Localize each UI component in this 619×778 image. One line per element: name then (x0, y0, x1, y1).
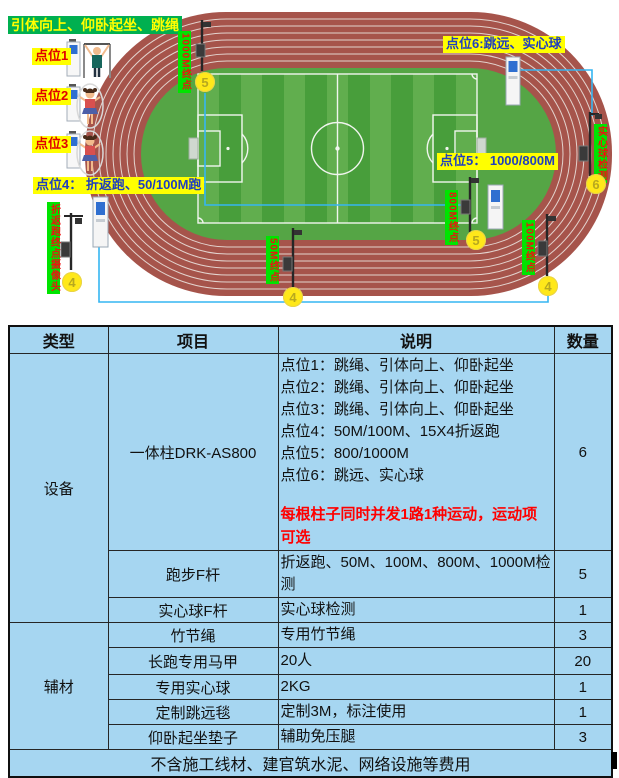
kiosk-point6-icon (506, 57, 520, 105)
kiosk-point4-icon (93, 197, 108, 247)
desc-cell: 折返跑、50M、100M、800M、1000M检测 (278, 551, 554, 598)
finish-1000m-label: 1000M终点 (178, 31, 191, 93)
table-row: 辅材 竹节绳 专用竹节绳 3 (9, 623, 612, 648)
point6-label: 点位6:跳远、实心球 (443, 36, 565, 53)
pullup-station-figure (84, 44, 110, 78)
concurrency-note: 每根柱子同时并发1路1种运动，运动项可选 (281, 503, 552, 549)
qty-cell: 1 (554, 675, 612, 700)
desc-line: 点位4：50M/100M、15X4折返跑 (281, 421, 552, 443)
item-cell: 实心球F杆 (108, 598, 278, 623)
text-cursor-artifact (611, 752, 617, 769)
qty-cell: 6 (554, 354, 612, 551)
desc-cell: 专用竹节绳 (278, 623, 554, 648)
circle-5-top: 5 (195, 72, 215, 92)
equipment-table-wrap: 类型 项目 说明 数量 设备 一体柱DRK-AS800 点位1：跳绳、引体向上、… (8, 325, 613, 778)
header-desc: 说明 (278, 326, 554, 354)
circle-6-right: 6 (586, 174, 606, 194)
track-diagram: 引体向上、仰卧起坐、跳绳 点位1 点位2 点位3 点位4： 折返跑、50/100… (0, 0, 619, 324)
exclusion-note: 不含施工线材、建官筑水泥、网络设施等费用 (9, 750, 612, 778)
header-item: 项目 (108, 326, 278, 354)
goal-left-icon (189, 138, 198, 159)
finish-800m-label: 800M终点 (445, 190, 458, 245)
circle-4-left: 4 (62, 272, 82, 292)
desc-line: 点位1：跳绳、引体向上、仰卧起坐 (281, 355, 552, 377)
circle-5-mid: 5 (466, 230, 486, 250)
shuttle-run-finish-camera-label: 折返跑终点摄像头 (47, 202, 60, 294)
qty-cell: 5 (554, 551, 612, 598)
point4-label: 点位4： 折返跑、50/100M跑 (33, 177, 204, 194)
desc-cell: 定制3M，标注使用 (278, 700, 554, 725)
table-row: 设备 一体柱DRK-AS800 点位1：跳绳、引体向上、仰卧起坐 点位2：跳绳、… (9, 354, 612, 551)
item-cell: 专用实心球 (108, 675, 278, 700)
item-cell: 仰卧起坐垫子 (108, 725, 278, 750)
item-cell: 竹节绳 (108, 623, 278, 648)
desc-cell: 20人 (278, 648, 554, 675)
qty-cell: 3 (554, 623, 612, 648)
finish-100m-label: 100M终点 (522, 220, 535, 275)
circle-4-mid: 4 (283, 287, 303, 307)
equipment-table: 类型 项目 说明 数量 设备 一体柱DRK-AS800 点位1：跳绳、引体向上、… (8, 325, 613, 778)
kiosk-point5-icon (488, 185, 503, 229)
desc-line: 点位6：跳远、实心球 (281, 465, 552, 487)
qty-cell: 3 (554, 725, 612, 750)
desc-cell: 2KG (278, 675, 554, 700)
qty-cell: 1 (554, 598, 612, 623)
point3-label: 点位3 (32, 136, 71, 153)
header-type: 类型 (9, 326, 108, 354)
item-cell: 跑步F杆 (108, 551, 278, 598)
point2-label: 点位2 (32, 88, 71, 105)
page: 引体向上、仰卧起坐、跳绳 点位1 点位2 点位3 点位4： 折返跑、50/100… (0, 0, 619, 770)
point5-label: 点位5： 1000/800M (437, 153, 558, 170)
item-cell: 定制跳远毯 (108, 700, 278, 725)
header-qty: 数量 (554, 326, 612, 354)
circle-4-right: 4 (538, 276, 558, 296)
desc-cell: 实心球检测 (278, 598, 554, 623)
point1-label: 点位1 (32, 48, 71, 65)
camera-pole-shuttle-icon (61, 213, 83, 270)
category-equipment: 设备 (9, 354, 108, 623)
desc-line: 点位2：跳绳、引体向上、仰卧起坐 (281, 377, 552, 399)
item-cell: 一体柱DRK-AS800 (108, 354, 278, 551)
desc-line: 点位5：800/1000M (281, 443, 552, 465)
desc-line: 点位3：跳绳、引体向上、仰卧起坐 (281, 399, 552, 421)
item-cell: 长跑专用马甲 (108, 648, 278, 675)
desc-cell: 辅助免压腿 (278, 725, 554, 750)
soccer-pitch (189, 74, 486, 223)
table-footer-row: 不含施工线材、建官筑水泥、网络设施等费用 (9, 750, 612, 778)
qty-cell: 20 (554, 648, 612, 675)
desc-cell: 点位1：跳绳、引体向上、仰卧起坐 点位2：跳绳、引体向上、仰卧起坐 点位3：跳绳… (278, 354, 554, 551)
activities-label: 引体向上、仰卧起坐、跳绳 (8, 16, 182, 34)
finish-50m-label: 50M终点 (266, 236, 279, 284)
qty-cell: 1 (554, 700, 612, 725)
category-accessories: 辅材 (9, 623, 108, 750)
